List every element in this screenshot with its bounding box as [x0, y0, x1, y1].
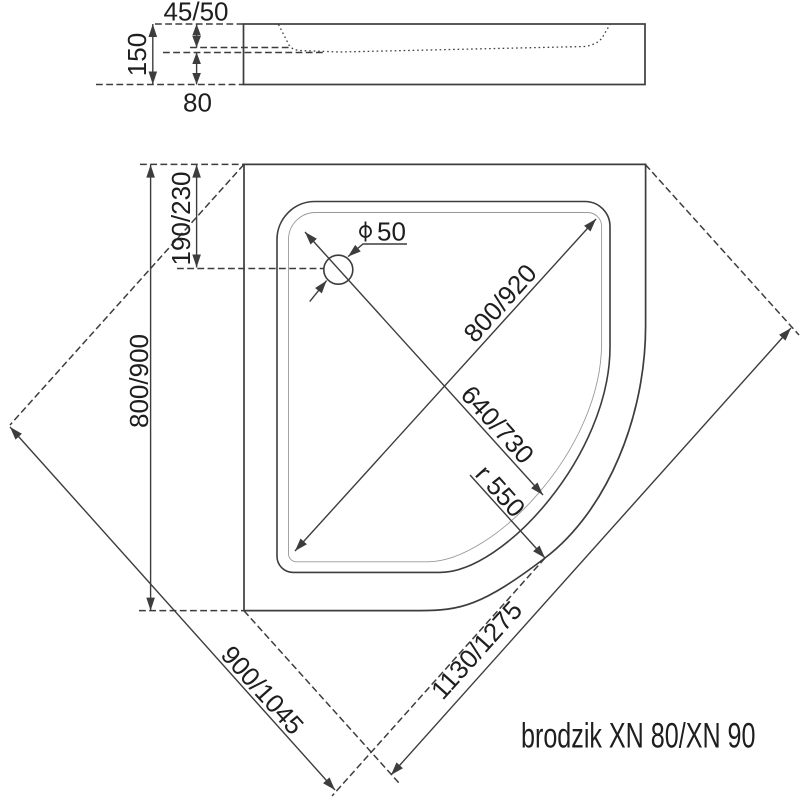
svg-text:900/1045: 900/1045 — [215, 640, 310, 741]
svg-text:640/730: 640/730 — [455, 380, 540, 470]
svg-text:brodzik XN 80/XN 90: brodzik XN 80/XN 90 — [521, 716, 756, 756]
svg-text:190/230: 190/230 — [166, 172, 196, 266]
svg-text:800/900: 800/900 — [124, 334, 154, 428]
svg-text:800/920: 800/920 — [457, 258, 542, 348]
svg-text:50: 50 — [377, 217, 406, 247]
svg-text:45/50: 45/50 — [163, 0, 228, 27]
svg-text:80: 80 — [183, 88, 212, 118]
svg-text:150: 150 — [122, 33, 152, 76]
svg-text:r 550: r 550 — [469, 459, 531, 523]
svg-text:1130/1275: 1130/1275 — [425, 595, 528, 705]
